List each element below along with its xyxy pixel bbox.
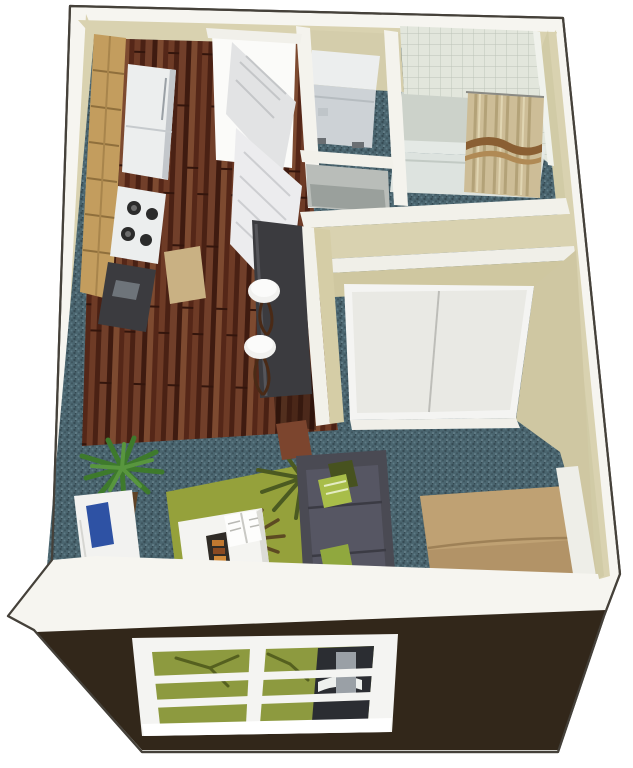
end-table: [276, 420, 312, 460]
front-wall: [8, 556, 606, 750]
media-console: [74, 490, 140, 564]
stove: [110, 186, 166, 264]
refrigerator: [122, 64, 176, 180]
sliding-door-sill: [350, 418, 520, 430]
sliding-door-left-panel: [352, 291, 438, 413]
shower-curtain: [464, 92, 544, 198]
floor-plan-stage: [0, 0, 633, 768]
floor-plan-3d-render: [0, 0, 633, 768]
sliding-closet-doors: [344, 284, 534, 430]
burner: [146, 208, 158, 220]
kitchen-counter: [98, 262, 156, 332]
burner: [140, 234, 152, 246]
kitchen-mat: [164, 246, 206, 304]
front-window: [132, 634, 398, 736]
window-pane-left: [152, 649, 252, 725]
washer-door-handle: [318, 108, 328, 116]
appliance-foot: [352, 142, 364, 148]
linen-closet: [300, 150, 394, 214]
bathroom: [390, 26, 554, 198]
